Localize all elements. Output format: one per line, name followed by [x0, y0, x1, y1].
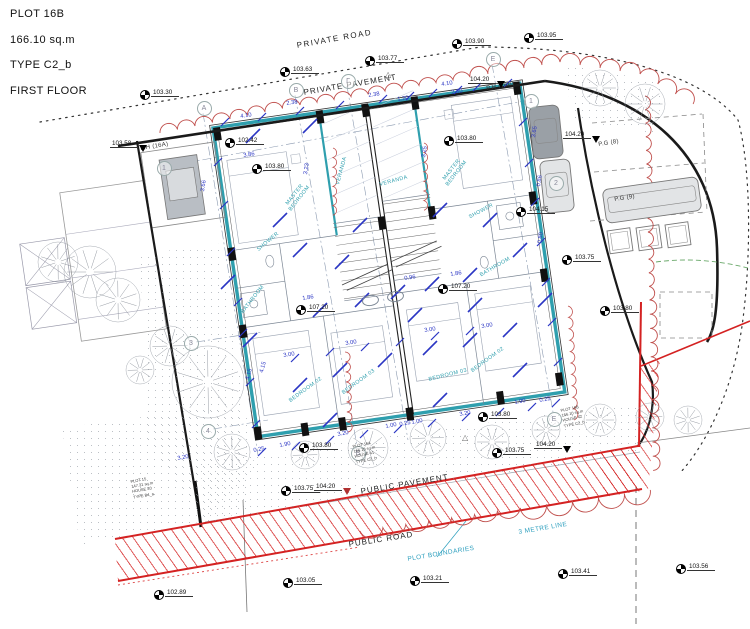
title-block: PLOT 16B 166.10 sq.m TYPE C2_b FIRST FLO…: [10, 8, 87, 110]
building-plan: [6, 75, 569, 473]
site-plan-page: { "title_block": { "lines": ["PLOT 16B",…: [0, 0, 750, 629]
plot-type: TYPE C2_b: [10, 59, 87, 71]
floor-name: FIRST FLOOR: [10, 85, 87, 97]
plot-number: PLOT 16B: [10, 8, 87, 20]
plot-area: 166.10 sq.m: [10, 34, 87, 46]
